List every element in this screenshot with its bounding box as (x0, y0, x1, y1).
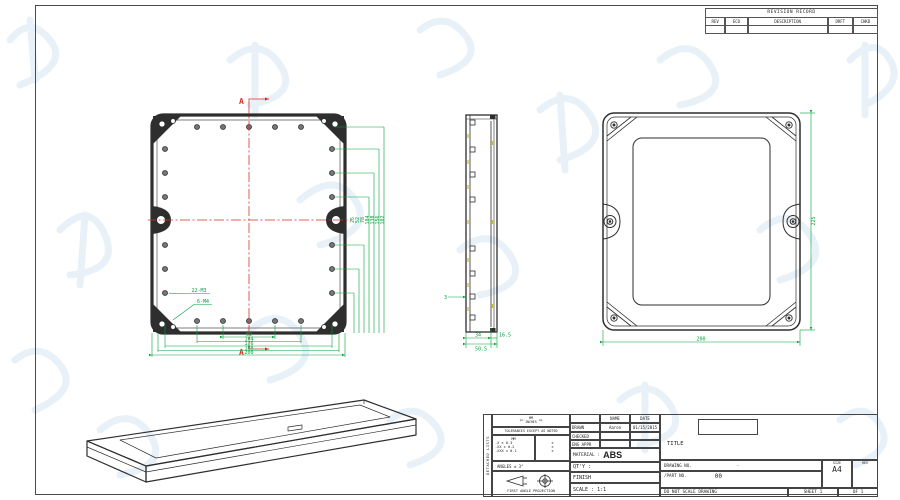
drawing-no-value: - (737, 463, 740, 468)
back-view-body (603, 113, 800, 330)
revision-col-description: DESCRIPTION (748, 18, 828, 26)
svg-text:50.5: 50.5 (475, 347, 487, 353)
sheet-cell: SHEET 1 (788, 488, 838, 497)
isometric-view (62, 386, 452, 496)
units-symbol: ⇦ MM INCHES ⇨ (492, 414, 570, 427)
logo-box (698, 419, 758, 435)
name-header: NAME (600, 414, 630, 423)
drawn-date: 01/15/2015 (630, 423, 660, 432)
holes-count-label: 22-M3 (191, 288, 206, 294)
svg-text:16.5: 16.5 (499, 333, 511, 339)
svg-text:225: 225 (811, 216, 817, 225)
front-view-body (152, 115, 345, 333)
part-no-value: 00 (715, 473, 722, 480)
svg-text:200: 200 (244, 350, 253, 356)
eng-appr-label: ENG APPR (570, 440, 600, 448)
scale-row: SCALE : 1:1 (570, 483, 660, 497)
title-cell: TITLE (660, 414, 878, 460)
section-label-bottom: A (239, 348, 244, 357)
revision-record-table: REVISION RECORD REV ECO DESCRIPTION DRFT… (705, 8, 878, 34)
projection-note: FIRST ANGLE PROJECTION (493, 489, 569, 493)
revision-col-chkd: CHKD (853, 18, 878, 26)
svg-text:34: 34 (475, 333, 481, 339)
back-view-dimensions (603, 113, 815, 346)
qty-row: QT'Y : (570, 462, 660, 472)
side-view-center-marks (468, 134, 493, 311)
finish-row: FINISH (570, 472, 660, 483)
section-label-top: A (239, 97, 244, 106)
revision-col-eco: ECO (725, 18, 747, 26)
drawing-no-row: DRAWING NO. - (660, 460, 822, 471)
svg-text:3: 3 (444, 295, 447, 301)
rev-cell: REV (852, 460, 878, 488)
tolerance-note: TOLERANCES EXCEPT AS NOTED (492, 427, 570, 435)
front-view-dimensions (152, 127, 384, 357)
revision-table-title: REVISION RECORD (705, 8, 878, 18)
side-view-dimensions (448, 297, 497, 348)
first-angle-projection-icon (493, 473, 571, 489)
title-block-side-strip: DETACHED LISTS (483, 414, 492, 497)
title-block: DETACHED LISTS ⇦ MM INCHES ⇨ TOLERANCES … (483, 414, 878, 497)
left-arrow-icon: ⇦ (520, 417, 524, 424)
material-row: MATERIAL : ABS (570, 448, 660, 462)
tolerance-inch-column: ± ± ± (535, 435, 570, 461)
drawn-name: Aaron (600, 423, 630, 432)
right-arrow-icon: ⇨ (539, 417, 543, 424)
back-view: 200 225 (593, 96, 833, 366)
angles-note: ANGLES ± 3° (492, 461, 570, 471)
part-no-row: /PART NO. 00 (660, 471, 822, 488)
engineering-drawing-page: { "colors": { "drawing_line": "#2e2e2e",… (0, 0, 900, 500)
of-cell: OF 1 (838, 488, 878, 497)
size-value: A4 (823, 465, 851, 474)
projection-cell: FIRST ANGLE PROJECTION (492, 471, 570, 497)
revision-col-rev: REV (705, 18, 725, 26)
side-view: 3 34 16.5 50.5 (438, 96, 528, 366)
section-line-a-a (148, 99, 351, 349)
size-cell: SIZE A4 (822, 460, 852, 488)
drawn-label: DRAWN (570, 423, 600, 432)
svg-text:182: 182 (380, 215, 386, 224)
revision-table-header: REV ECO DESCRIPTION DRFT CHKD (705, 18, 878, 26)
title-label: TITLE (667, 441, 684, 447)
revision-table-empty-row (705, 26, 878, 34)
svg-text:200: 200 (696, 337, 705, 343)
front-view-dimension-text: 52 104 176 188 200 26 52 78 104 130 156 … (191, 215, 386, 356)
date-header: DATE (630, 414, 660, 423)
front-view: A A 52 104 176 188 200 26 52 78 104 (148, 96, 408, 366)
checked-label: CHECKED (570, 432, 600, 440)
bosses-count-label: 6-M4 (197, 299, 209, 305)
revision-col-drft: DRFT (828, 18, 853, 26)
do-not-scale-note: DO NOT SCALE DRAWING (660, 488, 788, 497)
tolerance-table: MM .X ± 0.3 .XX ± 0.2 .XXX ± 0.1 (492, 435, 535, 461)
material-value: ABS (603, 450, 622, 460)
